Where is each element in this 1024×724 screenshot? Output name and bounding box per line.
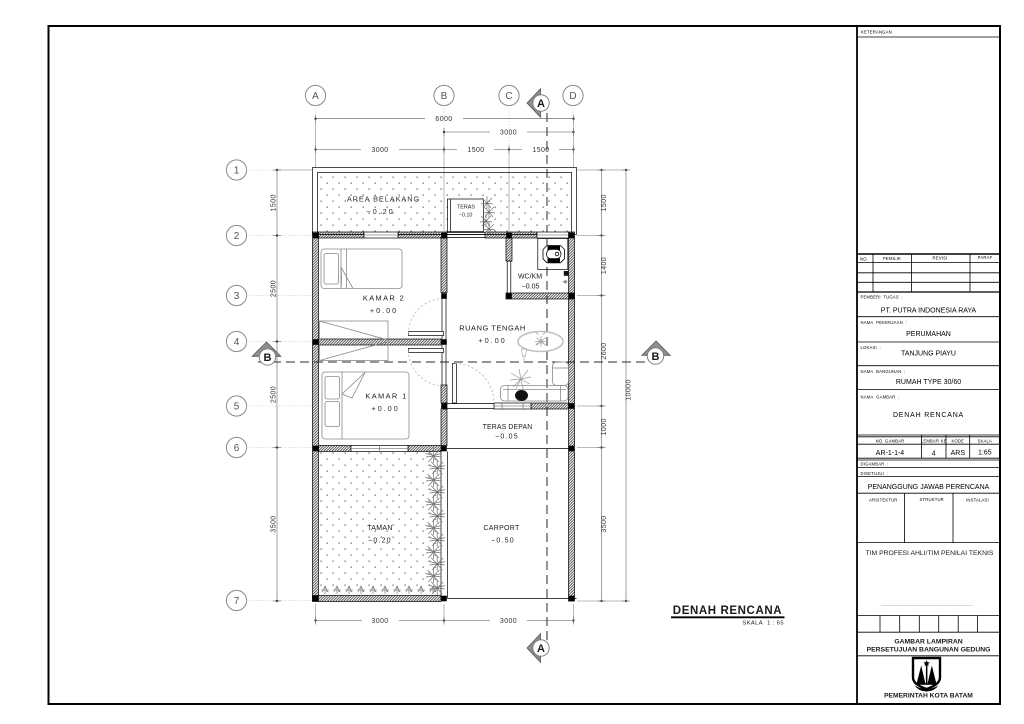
svg-text:LEMBAR KE: LEMBAR KE [921, 438, 947, 443]
svg-text:6: 6 [234, 443, 240, 454]
svg-text:2600: 2600 [601, 342, 608, 359]
svg-text:1:65: 1:65 [978, 450, 992, 457]
svg-text:+0.00: +0.00 [478, 336, 506, 345]
svg-text:1500: 1500 [601, 194, 608, 211]
svg-text:WC/KM: WC/KM [518, 274, 542, 281]
svg-text:CARPORT: CARPORT [483, 525, 520, 532]
svg-text:RUMAH TYPE 30/60: RUMAH TYPE 30/60 [896, 379, 961, 386]
svg-text:1400: 1400 [601, 257, 608, 274]
svg-text:−0.20: −0.20 [368, 538, 392, 545]
svg-text:NO.: NO. [860, 257, 868, 262]
svg-text:PEMERINTAH KOTA BATAM: PEMERINTAH KOTA BATAM [884, 693, 973, 700]
svg-text:PARAF: PARAF [978, 255, 993, 260]
svg-text:STRUKTUR: STRUKTUR [920, 497, 944, 502]
svg-text:A: A [312, 91, 319, 102]
svg-text:INSTALASI: INSTALASI [966, 498, 989, 503]
svg-text:KAMAR 1: KAMAR 1 [365, 392, 407, 401]
svg-text:REVISI: REVISI [933, 256, 948, 261]
svg-text:PT. PUTRA INDONESIA RAYA: PT. PUTRA INDONESIA RAYA [881, 308, 977, 315]
svg-text:3000: 3000 [500, 130, 517, 137]
svg-text:TIM PROFESI AHLI/TIM PENILAI T: TIM PROFESI AHLI/TIM PENILAI TEKNIS [866, 550, 994, 557]
svg-text:2: 2 [234, 231, 240, 242]
svg-text:10000: 10000 [625, 379, 632, 400]
svg-text:TERAS: TERAS [457, 205, 475, 211]
svg-text:SKALA: SKALA [978, 438, 993, 443]
svg-text:KODE: KODE [951, 438, 964, 443]
svg-text:−0.05: −0.05 [495, 434, 519, 441]
svg-text:KAMAR 2: KAMAR 2 [363, 294, 405, 303]
svg-text:LOKASI :: LOKASI : [861, 345, 881, 350]
svg-text:2500: 2500 [271, 386, 278, 403]
svg-text:DENAH RENCANA: DENAH RENCANA [673, 605, 782, 617]
svg-text:PERSETUJUAN BANGUNAN GEDUNG: PERSETUJUAN BANGUNAN GEDUNG [867, 647, 991, 654]
svg-text:DENAH RENCANA: DENAH RENCANA [893, 412, 964, 419]
svg-text:1500: 1500 [271, 194, 278, 211]
svg-text:AREA BELAKANG: AREA BELAKANG [347, 195, 420, 204]
svg-text:TANJUNG PIAYU: TANJUNG PIAYU [901, 351, 956, 358]
svg-text:D: D [569, 91, 576, 102]
svg-text:TAMAN: TAMAN [367, 525, 392, 532]
svg-text:AR-1-1-4: AR-1-1-4 [876, 450, 905, 457]
svg-text:NAMA PEKERJAAN :: NAMA PEKERJAAN : [861, 320, 907, 325]
svg-text:−0.50: −0.50 [491, 538, 515, 545]
svg-text:B: B [652, 351, 660, 363]
svg-text:+0.00: +0.00 [370, 306, 398, 315]
svg-text:3500: 3500 [601, 515, 608, 532]
svg-text:A: A [537, 643, 545, 655]
svg-text:4: 4 [234, 337, 240, 348]
svg-text:TERAS DEPAN: TERAS DEPAN [483, 424, 533, 431]
svg-text:PENANGGUNG JAWAB PERENCANA: PENANGGUNG JAWAB PERENCANA [868, 484, 990, 491]
svg-text:3000: 3000 [371, 618, 388, 625]
svg-text:−0.20: −0.20 [366, 207, 394, 216]
svg-text:DIGAMBAR :: DIGAMBAR : [861, 462, 889, 467]
svg-text:PEMBERI TUGAS :: PEMBERI TUGAS : [861, 295, 903, 300]
svg-text:3500: 3500 [271, 515, 278, 532]
svg-text:ARSITEKTUR: ARSITEKTUR [869, 498, 898, 503]
svg-text:NO. GAMBAR: NO. GAMBAR [876, 438, 905, 443]
svg-text:5: 5 [234, 402, 240, 413]
svg-text:A: A [537, 98, 545, 110]
svg-text:+0.00: +0.00 [371, 404, 399, 413]
svg-text:−0.10: −0.10 [459, 213, 473, 219]
svg-text:NAMA GAMBAR :: NAMA GAMBAR : [861, 395, 900, 400]
svg-text:GAMBAR LAMPIRAN: GAMBAR LAMPIRAN [894, 639, 962, 646]
svg-text:B: B [441, 91, 448, 102]
svg-text:RUANG TENGAH: RUANG TENGAH [459, 324, 526, 333]
svg-text:B: B [264, 352, 272, 364]
svg-text:PEMILIK: PEMILIK [883, 256, 901, 261]
svg-text:1: 1 [234, 166, 240, 177]
svg-text:3000: 3000 [371, 147, 388, 154]
svg-text:C: C [505, 91, 512, 102]
svg-text:2500: 2500 [271, 280, 278, 297]
svg-text:ARS: ARS [951, 450, 966, 457]
svg-text:1500: 1500 [467, 147, 484, 154]
svg-text:7: 7 [234, 596, 240, 607]
svg-text:KETERANGAN: KETERANGAN [861, 30, 892, 35]
svg-text:4: 4 [932, 451, 936, 458]
svg-text:−0.05: −0.05 [522, 284, 540, 291]
svg-text:SKALA 1 : 65: SKALA 1 : 65 [742, 621, 784, 627]
svg-text:NAMA BANGUNAN :: NAMA BANGUNAN : [861, 369, 906, 374]
svg-text:DISETUJUI :: DISETUJUI : [861, 471, 889, 476]
svg-text:6000: 6000 [435, 116, 452, 123]
svg-text:1000: 1000 [601, 418, 608, 435]
svg-text:3000: 3000 [500, 618, 517, 625]
svg-text:3: 3 [234, 291, 240, 302]
svg-text:PERUMAHAN: PERUMAHAN [906, 331, 951, 338]
